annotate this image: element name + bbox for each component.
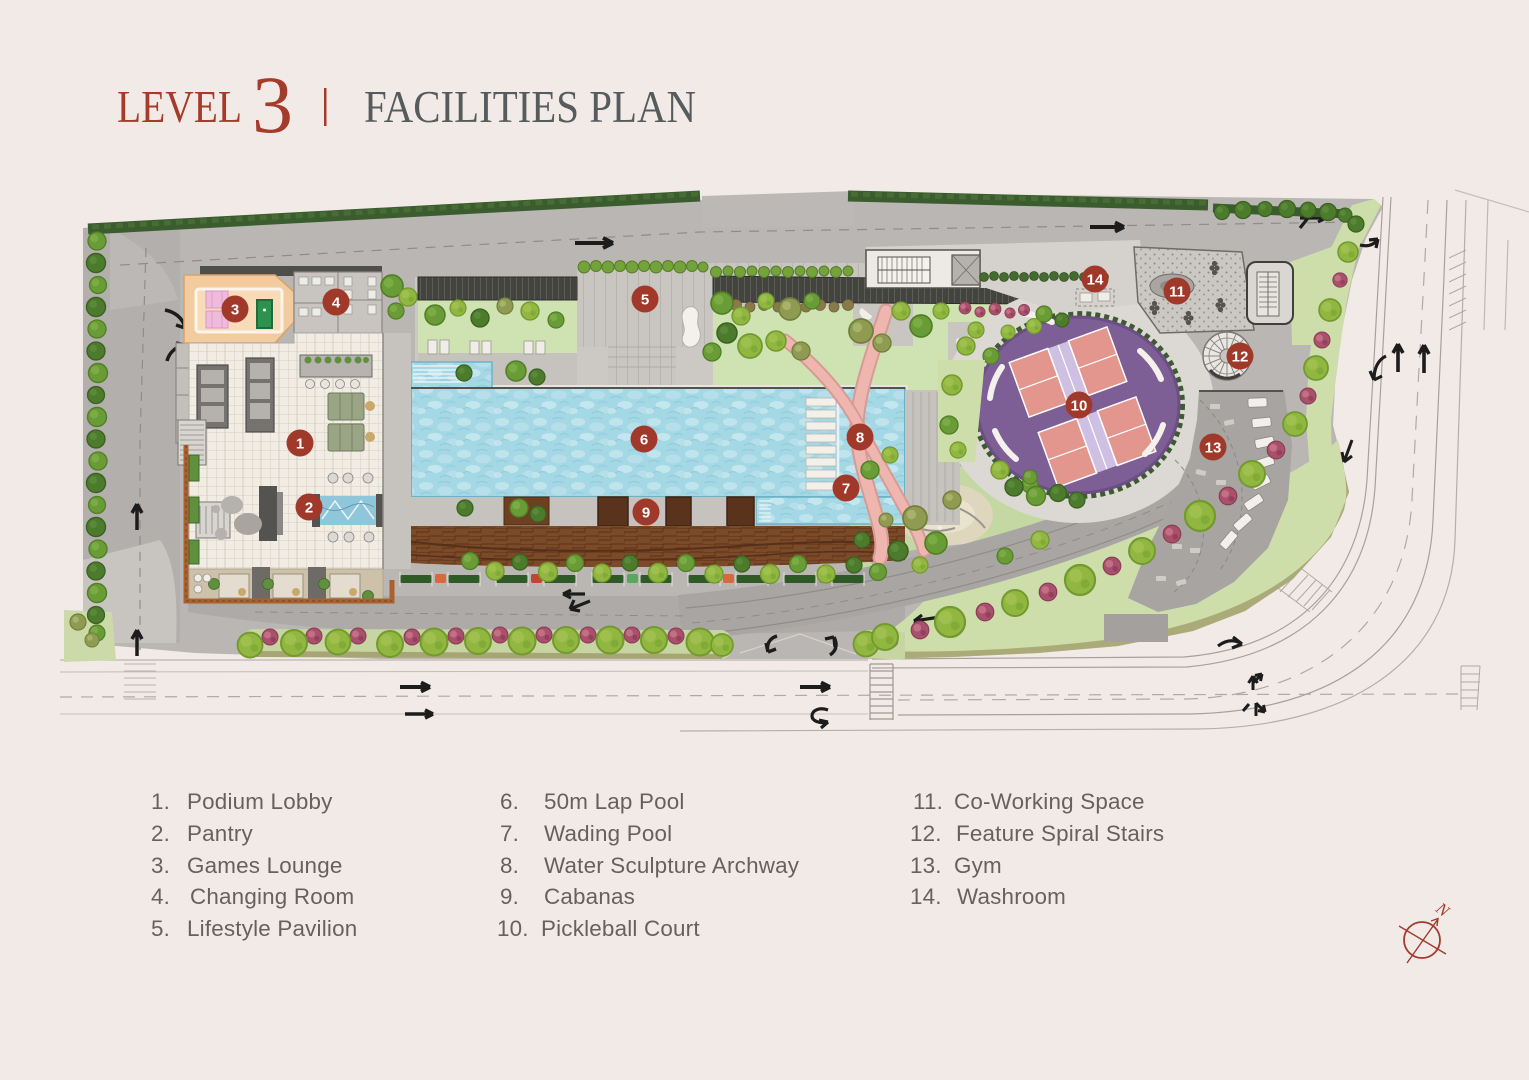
svg-text:3: 3 <box>252 59 293 150</box>
svg-text:Pickleball Court: Pickleball Court <box>541 916 700 941</box>
svg-text:3.: 3. <box>151 853 170 878</box>
svg-text:Water Sculpture Archway: Water Sculpture Archway <box>544 853 800 878</box>
svg-text:13: 13 <box>1205 440 1222 457</box>
svg-text:12: 12 <box>1232 349 1249 366</box>
svg-text:Feature Spiral Stairs: Feature Spiral Stairs <box>956 821 1164 846</box>
svg-text:11: 11 <box>1169 284 1185 301</box>
svg-text:7: 7 <box>842 481 850 498</box>
svg-text:9.: 9. <box>500 884 519 909</box>
svg-text:10: 10 <box>1071 398 1088 415</box>
svg-text:13.: 13. <box>910 853 942 878</box>
svg-text:Changing Room: Changing Room <box>190 884 354 909</box>
svg-text:9: 9 <box>642 505 650 522</box>
svg-text:8: 8 <box>856 430 864 447</box>
svg-text:12.: 12. <box>910 821 942 846</box>
svg-text:6: 6 <box>640 432 648 449</box>
svg-text:10.: 10. <box>497 916 529 941</box>
svg-text:5.: 5. <box>151 916 170 941</box>
svg-text:Cabanas: Cabanas <box>544 884 635 909</box>
svg-text:3: 3 <box>231 302 239 319</box>
svg-text:50m Lap Pool: 50m Lap Pool <box>544 789 685 814</box>
svg-text:1: 1 <box>296 436 304 453</box>
svg-text:Wading Pool: Wading Pool <box>544 821 672 846</box>
svg-text:4: 4 <box>332 295 341 312</box>
svg-text:Games Lounge: Games Lounge <box>187 853 343 878</box>
svg-text:Gym: Gym <box>954 853 1002 878</box>
svg-text:7.: 7. <box>500 821 519 846</box>
svg-text:Washroom: Washroom <box>957 884 1066 909</box>
svg-text:LEVEL: LEVEL <box>117 81 242 132</box>
svg-text:5: 5 <box>641 292 649 309</box>
svg-text:8.: 8. <box>500 853 519 878</box>
svg-text:Co-Working Space: Co-Working Space <box>954 789 1145 814</box>
svg-text:2.: 2. <box>151 821 170 846</box>
svg-text:Pantry: Pantry <box>187 821 254 846</box>
svg-text:4.: 4. <box>151 884 170 909</box>
svg-text:6.: 6. <box>500 789 519 814</box>
svg-text:14.: 14. <box>910 884 942 909</box>
svg-text:14: 14 <box>1087 272 1104 289</box>
svg-text:11.: 11. <box>913 789 943 814</box>
svg-text:FACILITIES PLAN: FACILITIES PLAN <box>364 81 696 132</box>
svg-text:1.: 1. <box>151 789 170 814</box>
svg-text:2: 2 <box>305 500 313 517</box>
svg-text:Podium Lobby: Podium Lobby <box>187 789 333 814</box>
svg-text:Lifestyle Pavilion: Lifestyle Pavilion <box>187 916 357 941</box>
